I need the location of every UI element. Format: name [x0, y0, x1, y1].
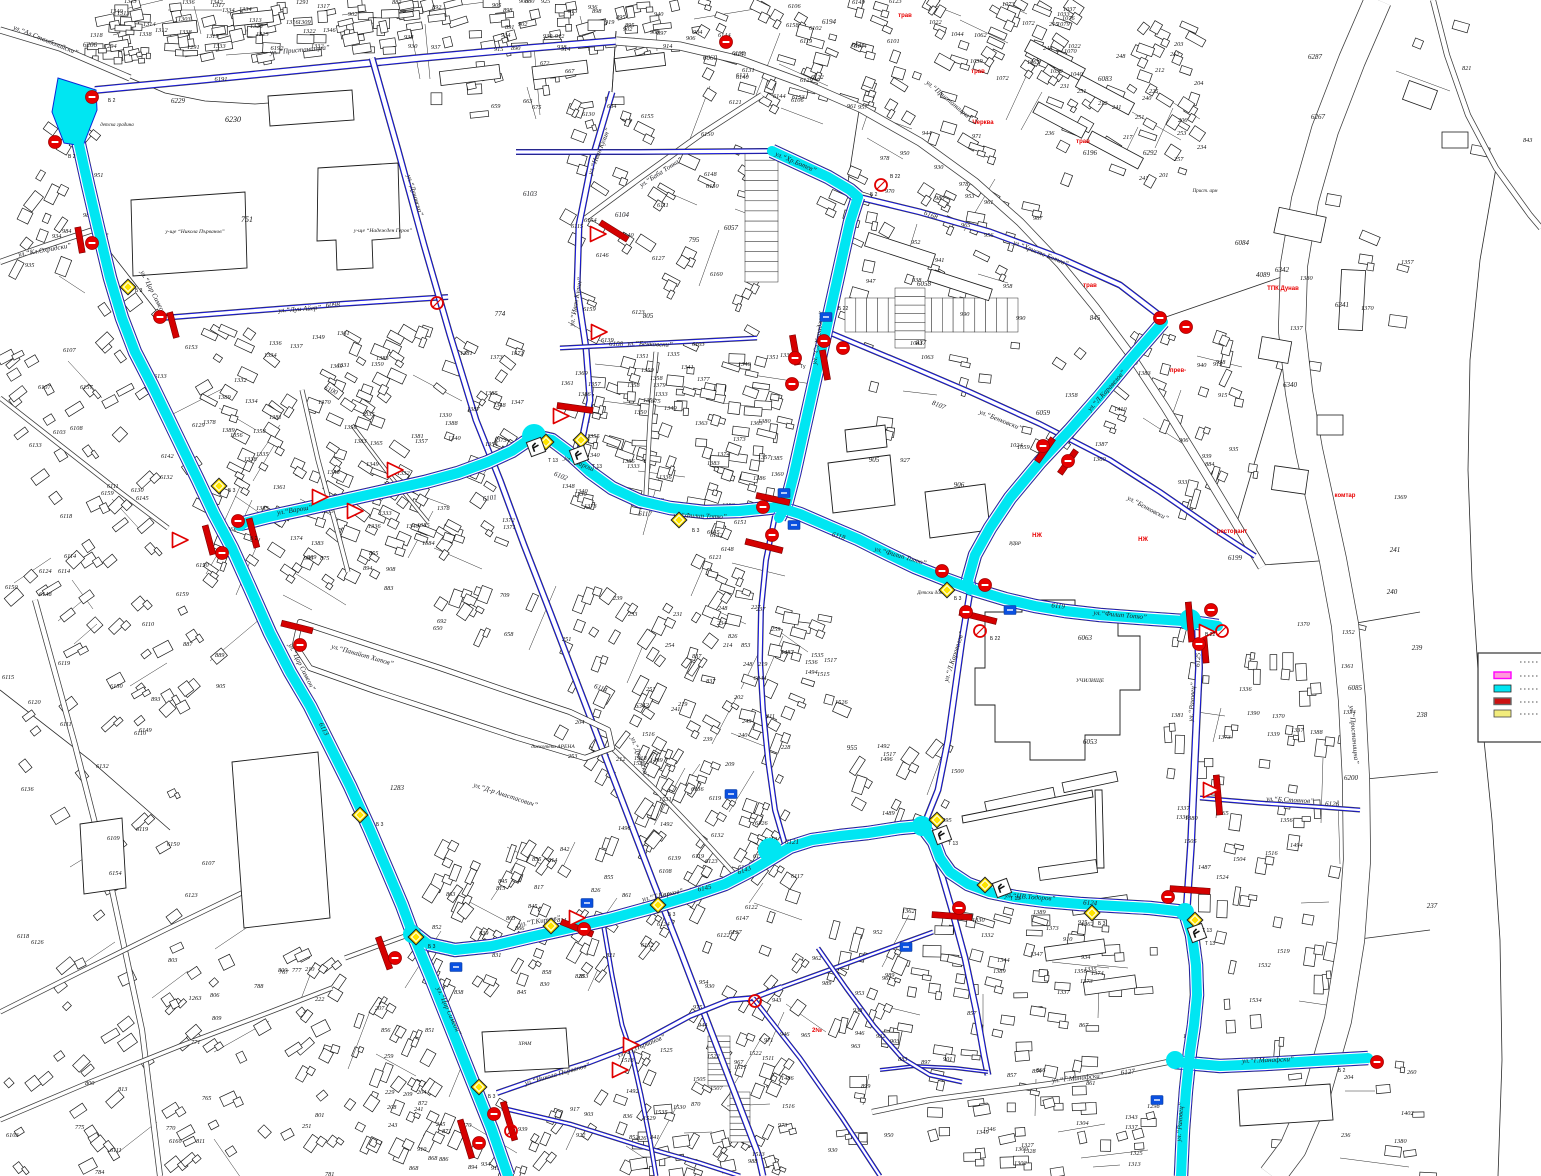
svg-text:1334: 1334: [264, 352, 277, 359]
svg-text:1360: 1360: [771, 471, 784, 478]
svg-text:936: 936: [588, 4, 598, 11]
svg-text:883: 883: [898, 1056, 907, 1063]
svg-text:1371: 1371: [503, 524, 516, 531]
svg-text:Б 3: Б 3: [488, 1094, 496, 1100]
svg-text:837: 837: [706, 678, 716, 685]
svg-text:1334: 1334: [239, 6, 252, 13]
svg-text:1072: 1072: [996, 75, 1009, 82]
svg-text:965: 965: [961, 222, 970, 229]
svg-text:1334: 1334: [245, 398, 258, 405]
svg-text:6122: 6122: [717, 932, 730, 939]
svg-text:1369: 1369: [1394, 494, 1407, 501]
svg-text:прев-: прев-: [1170, 368, 1186, 374]
svg-text:204: 204: [1194, 80, 1203, 87]
svg-text:6124: 6124: [39, 568, 52, 575]
svg-text:251: 251: [646, 686, 655, 693]
svg-text:6150: 6150: [701, 131, 714, 138]
svg-text:212: 212: [1098, 100, 1108, 107]
svg-text:892: 892: [432, 4, 442, 11]
svg-text:914: 914: [663, 43, 672, 50]
svg-text:1039: 1039: [970, 58, 983, 65]
svg-text:6154: 6154: [109, 870, 122, 877]
svg-text:961: 961: [847, 103, 856, 110]
svg-text:6111: 6111: [107, 483, 119, 490]
svg-text:1336: 1336: [368, 523, 381, 530]
svg-text:6160: 6160: [710, 271, 723, 278]
svg-text:1349: 1349: [664, 405, 677, 412]
svg-text:904: 904: [693, 29, 702, 36]
svg-text:1336: 1336: [269, 340, 282, 347]
svg-text:1062: 1062: [974, 32, 987, 39]
svg-text:957: 957: [858, 104, 868, 111]
svg-text:Б 2: Б 2: [250, 536, 258, 542]
svg-text:239: 239: [613, 595, 623, 602]
svg-text:1303: 1303: [178, 16, 191, 23]
svg-text:939: 939: [518, 1126, 528, 1133]
svg-text:6152: 6152: [641, 942, 654, 949]
svg-text:1380: 1380: [1394, 1138, 1407, 1145]
svg-text:857: 857: [967, 1010, 977, 1017]
svg-text:1373: 1373: [1080, 978, 1093, 985]
svg-text:1358: 1358: [627, 382, 640, 389]
svg-text:989: 989: [822, 980, 832, 987]
svg-text:1354: 1354: [485, 441, 498, 448]
svg-text:6108: 6108: [659, 868, 672, 875]
svg-text:893: 893: [151, 696, 160, 703]
svg-text:814: 814: [548, 857, 557, 864]
svg-text:6151: 6151: [734, 519, 747, 526]
svg-text:1385: 1385: [485, 390, 498, 397]
svg-text:912: 912: [555, 33, 565, 40]
svg-text:934: 934: [1081, 954, 1090, 961]
svg-text:809: 809: [212, 1015, 222, 1022]
svg-text:1072: 1072: [1022, 20, 1035, 27]
svg-text:6292: 6292: [1143, 149, 1158, 157]
svg-text:1336: 1336: [1239, 686, 1252, 693]
svg-text:1346: 1346: [323, 27, 336, 34]
svg-text:253: 253: [568, 753, 577, 760]
svg-text:1333: 1333: [379, 510, 392, 517]
svg-text:1534: 1534: [1249, 997, 1262, 1004]
svg-text:925: 925: [1078, 919, 1087, 926]
svg-text:950: 950: [884, 1132, 894, 1139]
svg-text:6119: 6119: [1051, 601, 1066, 610]
svg-text:1492: 1492: [626, 1088, 639, 1095]
svg-text:4089: 4089: [1256, 271, 1271, 279]
svg-text:1341: 1341: [681, 364, 694, 371]
svg-text:240: 240: [1142, 95, 1152, 102]
svg-text:1373: 1373: [584, 503, 597, 510]
svg-text:975: 975: [693, 1004, 702, 1011]
svg-text:6121: 6121: [709, 554, 722, 561]
svg-text:1358: 1358: [1065, 392, 1078, 399]
svg-text:875: 875: [320, 555, 329, 562]
svg-text:6059: 6059: [1036, 409, 1051, 417]
svg-text:1039: 1039: [1050, 68, 1063, 75]
svg-text:Б 3: Б 3: [228, 488, 236, 494]
svg-text:1361: 1361: [273, 484, 286, 491]
svg-text:Б 22: Б 22: [838, 306, 848, 312]
svg-text:Б 3: Б 3: [954, 596, 962, 602]
svg-text:1302: 1302: [1014, 1160, 1027, 1167]
svg-text:6098: 6098: [326, 300, 341, 309]
svg-text:241: 241: [414, 1106, 423, 1113]
svg-text:6139: 6139: [668, 855, 681, 862]
svg-text:1379: 1379: [653, 382, 666, 389]
svg-text:837: 837: [692, 653, 702, 660]
svg-text:856: 856: [381, 1027, 391, 1034]
svg-text:248: 248: [743, 661, 753, 668]
svg-text:901: 901: [943, 1056, 952, 1063]
svg-text:243: 243: [388, 1122, 397, 1129]
svg-text:6127: 6127: [729, 929, 742, 936]
svg-text:961: 961: [984, 199, 993, 206]
svg-text:1342: 1342: [210, 0, 223, 6]
svg-text:6118: 6118: [17, 933, 30, 940]
svg-text:1492: 1492: [660, 821, 673, 828]
svg-text:219: 219: [758, 661, 768, 668]
svg-text:1348: 1348: [327, 469, 340, 476]
svg-text:889: 889: [215, 652, 225, 659]
svg-text:6144: 6144: [773, 93, 786, 100]
svg-text:6103: 6103: [53, 429, 66, 436]
svg-text:1373: 1373: [1046, 925, 1059, 932]
svg-text:967: 967: [1033, 215, 1043, 222]
svg-text:1313: 1313: [124, 0, 137, 5]
svg-text:906: 906: [686, 35, 696, 42]
svg-text:6053: 6053: [1083, 738, 1098, 746]
svg-text:1535: 1535: [811, 652, 824, 659]
svg-text:1022: 1022: [1068, 43, 1081, 50]
svg-text:1373: 1373: [733, 436, 746, 443]
svg-text:940: 940: [1197, 362, 1207, 369]
svg-text:965: 965: [801, 1032, 810, 1039]
svg-text:1332: 1332: [234, 377, 247, 384]
svg-text:952: 952: [873, 929, 883, 936]
svg-text:1370: 1370: [1297, 621, 1310, 628]
svg-text:1505: 1505: [693, 1076, 706, 1083]
svg-text:770: 770: [166, 1125, 176, 1132]
svg-text:6108: 6108: [70, 425, 83, 432]
svg-text:1357: 1357: [588, 381, 601, 388]
svg-text:946: 946: [855, 1030, 865, 1037]
svg-text:231: 231: [1060, 83, 1069, 90]
svg-text:894: 894: [363, 565, 372, 572]
svg-text:845: 845: [498, 878, 507, 885]
svg-text:6107: 6107: [202, 860, 215, 867]
svg-text:6058: 6058: [917, 280, 932, 288]
svg-text:938: 938: [1216, 359, 1226, 366]
svg-text:978: 978: [880, 155, 890, 162]
svg-text:1530: 1530: [673, 1104, 686, 1111]
svg-text:6158: 6158: [786, 22, 799, 29]
svg-text:6107: 6107: [38, 384, 51, 391]
svg-text:1370: 1370: [1272, 713, 1285, 720]
svg-text:1389: 1389: [218, 394, 231, 401]
svg-text:240: 240: [1387, 588, 1398, 596]
svg-text:894: 894: [468, 1164, 477, 1171]
svg-text:915: 915: [1218, 392, 1227, 399]
svg-text:1519: 1519: [1277, 948, 1290, 955]
svg-text:886: 886: [439, 1156, 449, 1163]
svg-text:988: 988: [748, 1158, 758, 1165]
svg-text:853: 853: [741, 642, 750, 649]
svg-text:939: 939: [543, 33, 553, 40]
svg-text:1487: 1487: [1198, 864, 1211, 871]
svg-text:973: 973: [778, 1122, 787, 1129]
svg-text:1079: 1079: [1057, 21, 1070, 28]
svg-text:6159: 6159: [176, 591, 189, 598]
svg-text:6123: 6123: [889, 0, 902, 5]
svg-text:6342: 6342: [1275, 266, 1290, 274]
svg-text:927: 927: [900, 457, 911, 464]
svg-text:6103: 6103: [6, 1132, 19, 1139]
svg-text:1073: 1073: [1002, 1, 1015, 8]
svg-text:990: 990: [1016, 315, 1026, 322]
svg-text:6206: 6206: [83, 41, 98, 49]
svg-text:6159: 6159: [101, 490, 114, 497]
svg-text:821: 821: [606, 952, 615, 959]
svg-text:Б 2: Б 2: [1338, 1068, 1346, 1074]
svg-text:6084: 6084: [1235, 239, 1250, 247]
svg-text:6157: 6157: [80, 384, 93, 391]
svg-text:НЖ: НЖ: [1032, 533, 1042, 539]
svg-text:248: 248: [718, 605, 728, 612]
svg-text:1338: 1338: [179, 29, 192, 36]
svg-text:212: 212: [616, 756, 626, 763]
svg-text:215: 215: [1049, 21, 1058, 28]
svg-text:1328: 1328: [250, 23, 263, 30]
svg-text:905: 905: [869, 456, 880, 464]
svg-text:1529: 1529: [643, 1115, 656, 1122]
svg-text:1313: 1313: [1128, 1161, 1141, 1168]
svg-text:1333: 1333: [627, 463, 640, 470]
svg-text:1291: 1291: [296, 0, 309, 6]
svg-text:6109: 6109: [107, 835, 120, 842]
svg-text:222: 222: [315, 996, 325, 1003]
svg-text:801: 801: [315, 1112, 324, 1119]
svg-text:1352: 1352: [1342, 629, 1355, 636]
svg-text:855: 855: [532, 856, 541, 863]
svg-text:Б 3: Б 3: [376, 822, 384, 828]
svg-text:880: 880: [525, 0, 535, 5]
svg-text:1356: 1356: [1280, 817, 1293, 824]
svg-text:1389: 1389: [993, 968, 1006, 975]
svg-text:1383: 1383: [1138, 370, 1151, 377]
svg-text:800: 800: [85, 1080, 95, 1087]
svg-text:805: 805: [643, 312, 654, 320]
svg-text:1313: 1313: [249, 17, 262, 24]
svg-text:946: 946: [780, 1031, 790, 1038]
svg-text:6114: 6114: [58, 568, 70, 575]
svg-text:1387: 1387: [467, 406, 480, 413]
svg-text:1516: 1516: [642, 731, 655, 738]
svg-text:1340: 1340: [738, 361, 751, 368]
svg-text:659: 659: [491, 103, 501, 110]
svg-text:1337: 1337: [1291, 727, 1304, 734]
svg-text:1487: 1487: [781, 649, 794, 656]
svg-text:1330: 1330: [439, 412, 452, 419]
svg-text:1335: 1335: [362, 411, 375, 418]
svg-text:1348: 1348: [562, 483, 575, 490]
svg-text:1335: 1335: [256, 451, 269, 458]
svg-text:1304: 1304: [1076, 1120, 1089, 1127]
svg-text:1378: 1378: [437, 505, 450, 512]
svg-text:1383: 1383: [707, 460, 720, 467]
svg-text:6146: 6146: [596, 252, 609, 259]
svg-text:6151: 6151: [734, 51, 747, 58]
svg-text:253: 253: [628, 611, 637, 618]
svg-text:204: 204: [575, 719, 584, 726]
svg-text:1263: 1263: [189, 995, 203, 1002]
svg-text:1531: 1531: [659, 796, 672, 803]
svg-text:1515: 1515: [817, 671, 830, 678]
svg-text:6107: 6107: [63, 347, 76, 354]
svg-text:1063: 1063: [921, 354, 934, 361]
svg-text:1349: 1349: [366, 461, 379, 468]
svg-text:Т 13: Т 13: [1010, 896, 1020, 902]
svg-text:863: 863: [506, 915, 515, 922]
svg-text:841: 841: [650, 1134, 659, 1141]
svg-text:1350: 1350: [344, 424, 357, 431]
svg-text:В 22: В 22: [890, 174, 901, 180]
svg-text:6136: 6136: [691, 786, 704, 793]
svg-text:6267: 6267: [1311, 113, 1326, 121]
svg-text:955: 955: [847, 744, 858, 752]
svg-text:1340: 1340: [406, 523, 419, 530]
svg-text:863: 863: [446, 891, 455, 898]
svg-text:1333: 1333: [213, 43, 226, 50]
svg-text:934: 934: [52, 233, 61, 240]
svg-text:1365: 1365: [370, 440, 383, 447]
svg-text:259: 259: [771, 626, 781, 633]
svg-text:1381: 1381: [269, 414, 282, 421]
svg-text:6148: 6148: [39, 591, 52, 598]
svg-text:1327: 1327: [1021, 1142, 1034, 1149]
svg-text:1312: 1312: [155, 27, 168, 34]
svg-text:1309: 1309: [298, 19, 311, 26]
svg-text:6119: 6119: [709, 795, 722, 802]
svg-text:1076: 1076: [1062, 15, 1075, 22]
svg-text:1361: 1361: [337, 330, 350, 337]
svg-text:трав: трав: [971, 69, 985, 75]
svg-text:938: 938: [404, 34, 414, 41]
svg-text:1340: 1340: [448, 435, 461, 442]
svg-text:1059: 1059: [1017, 444, 1030, 451]
svg-text:Т 13: Т 13: [548, 458, 558, 464]
svg-text:1373: 1373: [1218, 734, 1231, 741]
svg-text:913: 913: [568, 8, 577, 15]
svg-text:1294: 1294: [104, 43, 117, 50]
svg-text:1517: 1517: [824, 657, 837, 664]
svg-text:902: 902: [623, 26, 633, 33]
svg-text:241: 241: [671, 706, 680, 713]
svg-text:1362: 1362: [902, 908, 915, 915]
svg-text:867: 867: [1079, 1022, 1089, 1029]
svg-text:6132: 6132: [160, 474, 173, 481]
svg-text:891: 891: [505, 24, 514, 31]
svg-text:1386: 1386: [578, 391, 591, 398]
svg-text:249: 249: [742, 718, 752, 725]
svg-text:930: 930: [828, 1147, 838, 1154]
svg-text:910: 910: [1063, 936, 1073, 943]
svg-text:684: 684: [607, 103, 616, 110]
svg-text:ХРАМ: ХРАМ: [518, 1042, 533, 1047]
svg-text:1385: 1385: [417, 522, 430, 529]
svg-text:897: 897: [921, 1059, 931, 1066]
svg-text:962: 962: [812, 955, 822, 962]
svg-text:6119: 6119: [58, 660, 71, 667]
svg-text:933: 933: [1178, 479, 1187, 486]
svg-text:239: 239: [703, 736, 713, 743]
svg-text:1381: 1381: [1171, 712, 1184, 719]
svg-text:871: 871: [442, 1128, 451, 1135]
svg-text:943: 943: [772, 997, 781, 1004]
svg-text:667: 667: [565, 68, 575, 75]
svg-text:1355: 1355: [587, 433, 600, 440]
svg-text:6106: 6106: [788, 3, 801, 10]
svg-text:Т 13: Т 13: [1205, 941, 1215, 947]
svg-text:Б 3: Б 3: [135, 288, 143, 294]
svg-text:1330: 1330: [972, 917, 985, 924]
svg-text:6132: 6132: [711, 832, 724, 839]
svg-text:658: 658: [504, 631, 514, 638]
svg-text:6154: 6154: [584, 217, 597, 224]
svg-text:843: 843: [1523, 137, 1532, 144]
svg-text:902: 902: [518, 21, 528, 28]
svg-text:248: 248: [1116, 53, 1126, 60]
svg-text:1365: 1365: [750, 420, 763, 427]
svg-text:6117: 6117: [638, 510, 652, 518]
svg-text:детска градина: детска градина: [100, 123, 134, 128]
svg-text:236: 236: [1341, 1132, 1351, 1139]
svg-text:941: 941: [935, 257, 944, 264]
svg-text:6104: 6104: [615, 211, 630, 219]
svg-text:ТПК Дунав: ТПК Дунав: [1267, 286, 1299, 292]
svg-text:6057: 6057: [724, 224, 739, 232]
svg-text:851: 851: [425, 1027, 434, 1034]
svg-text:6132: 6132: [96, 763, 109, 770]
svg-text:883: 883: [384, 585, 393, 592]
svg-text:Черква: Черква: [972, 120, 994, 126]
svg-text:6150: 6150: [196, 562, 209, 569]
svg-text:237: 237: [1427, 902, 1438, 910]
svg-text:229: 229: [385, 1089, 395, 1096]
svg-text:1381: 1381: [460, 350, 473, 357]
svg-text:Прист. арм: Прист. арм: [1192, 189, 1219, 194]
svg-text:884: 884: [1205, 461, 1214, 468]
svg-text:1344: 1344: [997, 957, 1010, 964]
svg-text:Тy: Тy: [800, 364, 806, 370]
svg-text:1522: 1522: [749, 1050, 762, 1057]
svg-text:В 2: В 2: [68, 154, 76, 160]
svg-text:1402: 1402: [1401, 1110, 1414, 1117]
svg-text:1357: 1357: [1401, 259, 1414, 266]
svg-text:842: 842: [560, 846, 570, 853]
svg-text:1335: 1335: [1084, 966, 1097, 973]
svg-text:1517: 1517: [734, 1064, 747, 1071]
svg-text:НЖ: НЖ: [1138, 537, 1148, 543]
svg-text:1374: 1374: [717, 451, 730, 458]
svg-text:1319: 1319: [206, 33, 219, 40]
svg-text:1383: 1383: [311, 540, 324, 547]
svg-text:6101: 6101: [887, 38, 900, 45]
svg-text:954: 954: [699, 979, 708, 986]
svg-text:1387: 1387: [1095, 441, 1108, 448]
svg-text:914: 914: [561, 46, 570, 53]
svg-text:6103: 6103: [692, 341, 705, 348]
svg-text:6287: 6287: [1308, 53, 1323, 61]
